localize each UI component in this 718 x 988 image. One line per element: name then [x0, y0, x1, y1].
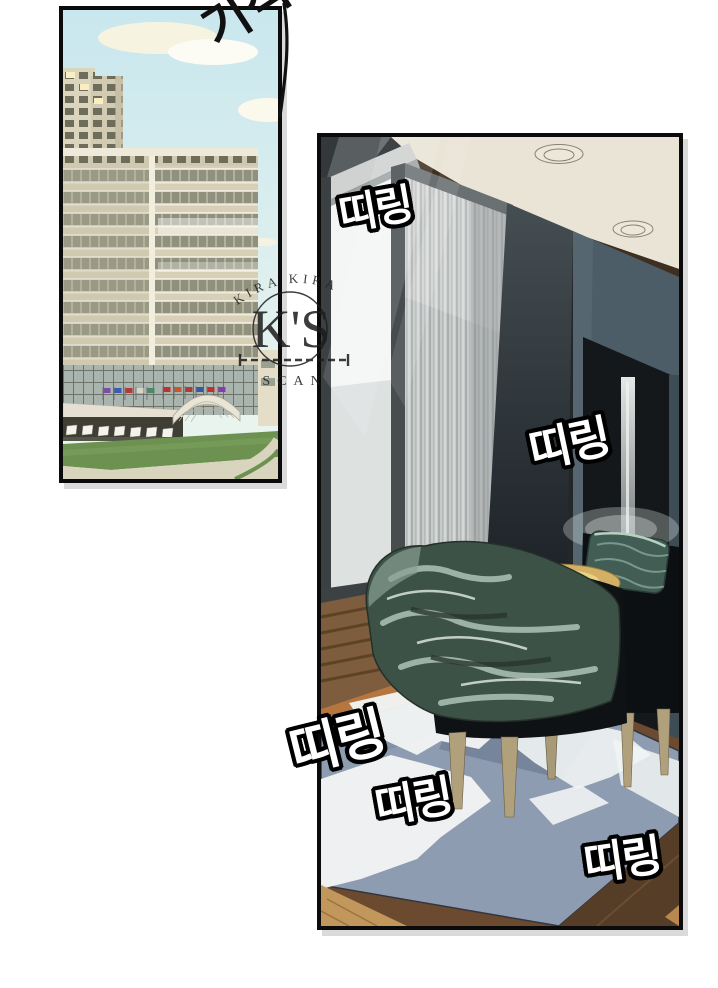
panel-room-interior [317, 133, 683, 930]
ceiling-light [613, 221, 653, 237]
panel-building-exterior [59, 6, 282, 483]
sfx-presence-tail-stroke [258, 0, 304, 126]
building-illustration [63, 10, 278, 479]
sfx-ding-text: 띠링 [333, 170, 416, 243]
scanlation-watermark: KIRA KIRA K'S SCAN [228, 254, 364, 406]
sfx-ding-text: 띠링 [369, 760, 456, 836]
ceiling-light [535, 145, 583, 164]
hotel-tower [63, 68, 123, 152]
watermark-scan-text: SCAN [262, 374, 327, 389]
sfx-ding-text: 띠링 [579, 819, 664, 893]
watermark-monogram: K'S [252, 299, 331, 359]
